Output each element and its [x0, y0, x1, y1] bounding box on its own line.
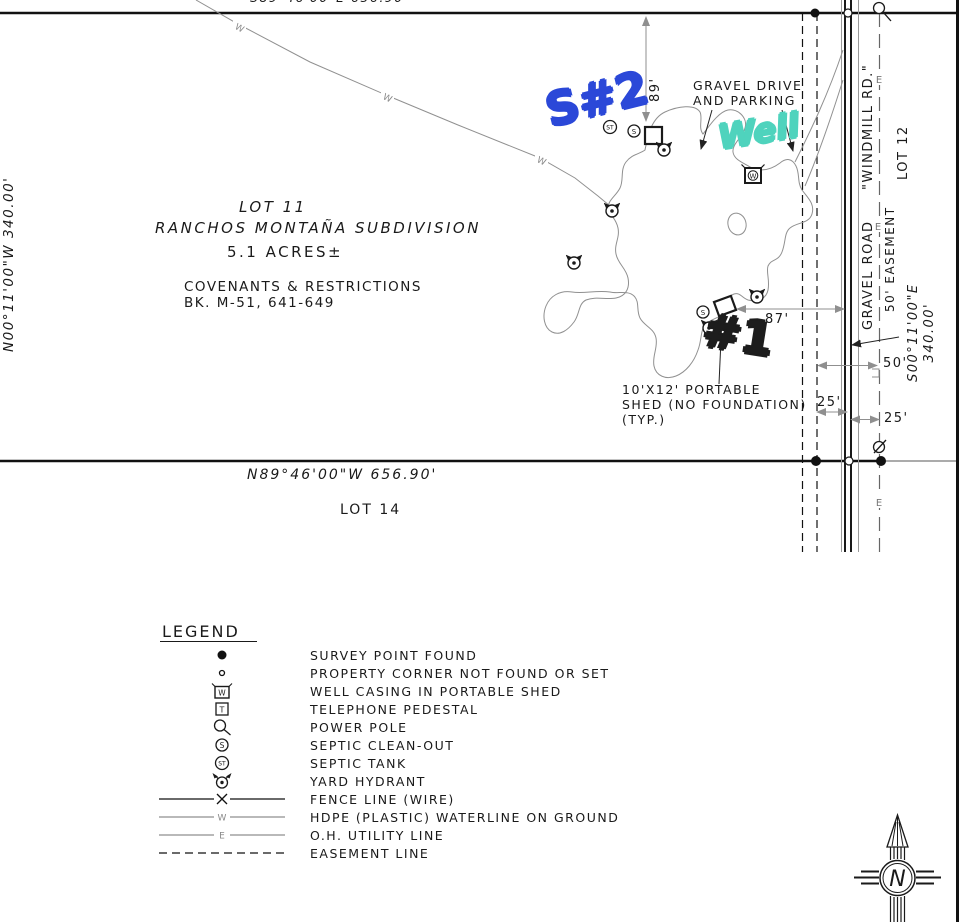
- svg-text:W: W: [218, 814, 227, 824]
- east-boundary-label: S00°11'00"E 340.00': [906, 283, 938, 382]
- handwritten-septic1-annotation: #1: [699, 303, 777, 367]
- legend-underline: [160, 641, 257, 642]
- lot11-book: BK. M-51, 641-649: [184, 295, 335, 311]
- lot14-label: LOT 14: [340, 502, 401, 519]
- north-boundary-label-clipped: S89°46'00"E 656.90': [250, 0, 480, 7]
- well-casing-icon: W: [157, 682, 287, 700]
- easement-lines: [803, 13, 818, 552]
- legend-row-well-casing: W WELL CASING IN PORTABLE SHED: [157, 682, 619, 700]
- septic-tank-icon: ST: [157, 754, 287, 772]
- south-boundary-label: N89°46'00"W 656.90': [247, 467, 437, 484]
- north-arrow-compass: N: [854, 815, 941, 922]
- septic-clean-out-icon: S: [157, 736, 287, 754]
- legend-row-utility-line: E O.H. UTILITY LINE: [157, 826, 619, 844]
- property-corner-icon: [157, 664, 287, 682]
- septic-cleanout-symbol: S: [628, 125, 640, 137]
- e-marker: E: [876, 75, 882, 86]
- power-pole-icon: [157, 718, 287, 736]
- dim-50-label: 50': [883, 356, 908, 372]
- survey-plat-page: E E E W W W ST: [0, 0, 965, 922]
- legend-row-yard-hydrant: YARD HYDRANT: [157, 772, 619, 790]
- svg-text:S: S: [220, 741, 225, 750]
- legend-row-septic-tank: ST SEPTIC TANK: [157, 754, 619, 772]
- legend-row-fence-line: FENCE LINE (WIRE): [157, 790, 619, 808]
- waterline-icon: W: [157, 808, 287, 826]
- svg-text:ST: ST: [218, 760, 226, 767]
- lot11-subdivision: RANCHOS MONTAÑA SUBDIVISION: [155, 219, 481, 237]
- legend-row-septic-cleanout: S SEPTIC CLEAN-OUT: [157, 736, 619, 754]
- svg-text:W: W: [750, 173, 757, 181]
- lot11-area: 5.1 ACRES±: [227, 243, 343, 261]
- legend-row-waterline: W HDPE (PLASTIC) WATERLINE ON GROUND: [157, 808, 619, 826]
- gravel-road-lines: [842, 0, 859, 552]
- dim-25-west-label: 25': [817, 395, 842, 411]
- legend-row-easement-line: EASEMENT LINE: [157, 844, 619, 862]
- north-letter: N: [889, 867, 905, 892]
- legend-row-survey-point: SURVEY POINT FOUND: [157, 646, 619, 664]
- legend-row-telephone: T TELEPHONE PEDESTAL: [157, 700, 619, 718]
- legend-row-power-pole: POWER POLE: [157, 718, 619, 736]
- shed-note: 10'X12' PORTABLE SHED (NO FOUNDATION) (T…: [622, 382, 807, 427]
- windmill-rd-label: "WINDMILL RD.": [861, 64, 877, 190]
- utility-line-icon: E: [157, 826, 287, 844]
- fence-line-icon: [157, 790, 287, 808]
- dim-25-east-label: 25': [884, 411, 909, 427]
- drive-island: [725, 211, 748, 237]
- survey-point-found-icon: [157, 646, 287, 664]
- svg-text:W: W: [218, 689, 226, 698]
- legend-row-property-corner: PROPERTY CORNER NOT FOUND OR SET: [157, 664, 619, 682]
- lot11-title: LOT 11: [239, 198, 307, 216]
- gravel-drive-label: GRAVEL DRIVE AND PARKING: [693, 78, 802, 108]
- lot11-covenants: COVENANTS & RESTRICTIONS: [184, 279, 422, 295]
- legend-title: LEGEND: [162, 622, 240, 641]
- dim-50-hook: [872, 369, 879, 377]
- yard-hydrant-icon: [157, 772, 287, 790]
- telephone-pedestal-icon: T: [157, 700, 287, 718]
- easement-line-icon: [157, 844, 287, 862]
- power-pole-symbol: [874, 440, 887, 453]
- e-marker: E: [876, 498, 882, 509]
- west-boundary-label: N00°11'00"W 340.00': [1, 177, 17, 352]
- lot12-label: LOT 12: [896, 125, 912, 180]
- portable-shed-2: [645, 127, 662, 144]
- svg-text:S: S: [632, 128, 637, 136]
- svg-text:ST: ST: [606, 125, 614, 132]
- gravel-road-label: GRAVEL ROAD: [861, 220, 877, 330]
- legend: SURVEY POINT FOUND PROPERTY CORNER NOT F…: [157, 646, 619, 862]
- easement-label: 50' EASEMENT: [883, 206, 897, 312]
- well-casing-symbol: W: [742, 165, 765, 184]
- svg-text:E: E: [219, 832, 225, 842]
- svg-text:T: T: [219, 705, 225, 714]
